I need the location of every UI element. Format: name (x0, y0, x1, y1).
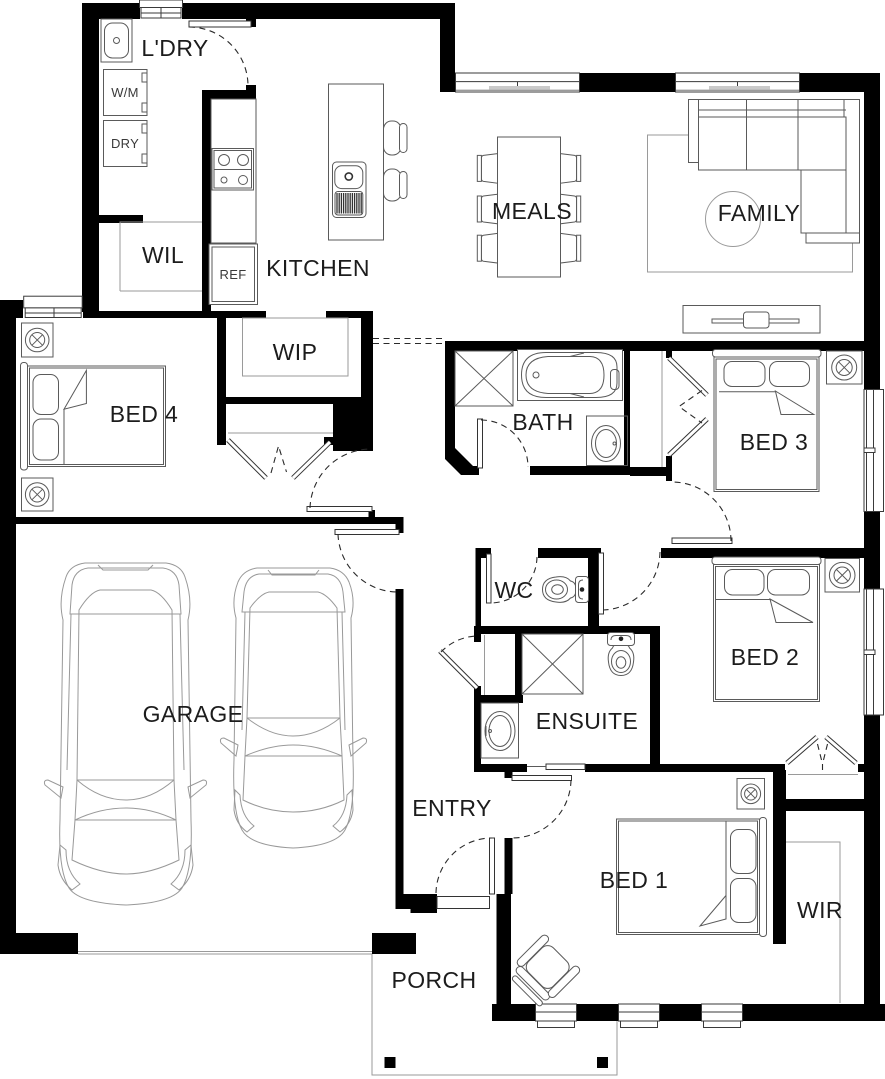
svg-text:REF: REF (220, 267, 247, 282)
svg-text:L'DRY: L'DRY (141, 35, 208, 61)
svg-text:W/M: W/M (111, 85, 139, 100)
svg-text:BED 4: BED 4 (110, 401, 178, 427)
svg-text:GARAGE: GARAGE (143, 701, 244, 727)
svg-text:WC: WC (494, 577, 533, 603)
svg-text:WIP: WIP (273, 339, 318, 365)
svg-text:BED 2: BED 2 (731, 644, 799, 670)
svg-text:BED 3: BED 3 (740, 429, 808, 455)
svg-text:KITCHEN: KITCHEN (266, 255, 370, 281)
svg-text:BED 1: BED 1 (600, 867, 668, 893)
svg-text:FAMILY: FAMILY (718, 200, 801, 226)
svg-text:PORCH: PORCH (391, 967, 476, 993)
svg-text:ENSUITE: ENSUITE (536, 708, 638, 734)
svg-text:MEALS: MEALS (492, 198, 572, 224)
svg-text:DRY: DRY (111, 136, 139, 151)
svg-text:WIR: WIR (797, 897, 843, 923)
svg-text:ENTRY: ENTRY (412, 795, 492, 821)
svg-text:BATH: BATH (512, 409, 573, 435)
svg-text:WIL: WIL (142, 242, 184, 268)
